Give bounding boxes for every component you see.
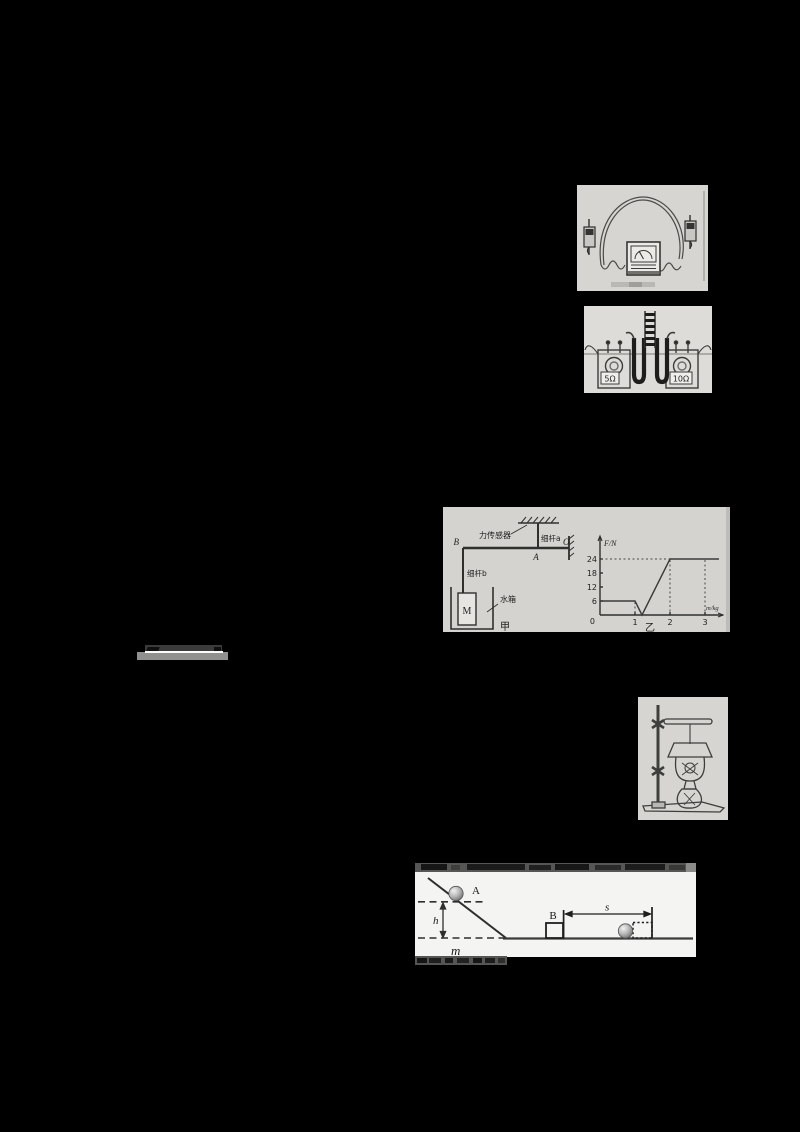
meter-box bbox=[627, 242, 660, 275]
right-resistor-label: 10Ω bbox=[673, 375, 689, 384]
joule-drawing: 5Ω 10Ω bbox=[584, 306, 712, 393]
lamp-pedestal bbox=[684, 781, 696, 789]
ladder-column bbox=[645, 311, 655, 348]
caption-yi: 乙 bbox=[645, 622, 655, 632]
figure-rope-arch-photo bbox=[577, 185, 708, 291]
figure-joule-heating: 5Ω 10Ω bbox=[584, 306, 712, 393]
y-tick-18: 18 bbox=[587, 569, 597, 578]
lever-graph-drawing: 力传感器 细杆a 细杆b B A O M 水箱 甲 F/N bbox=[443, 507, 730, 632]
caption-jia: 甲 bbox=[500, 622, 510, 632]
x-axis-label: m/kg bbox=[706, 605, 719, 612]
ceiling-support bbox=[518, 517, 559, 523]
scan-edge-strip bbox=[726, 507, 730, 632]
point-o-label: O bbox=[563, 537, 570, 547]
left-resistor-label: 5Ω bbox=[604, 375, 615, 384]
graph-curve bbox=[600, 559, 719, 615]
graph-dotted-guides bbox=[601, 559, 705, 614]
rope-arch-drawing bbox=[577, 185, 708, 291]
mass-label: m bbox=[451, 943, 460, 958]
figure-incline-experiment: A h m B s bbox=[415, 863, 696, 966]
y-tick-12: 12 bbox=[587, 583, 597, 592]
ball-at-end bbox=[618, 924, 632, 938]
block-b bbox=[546, 923, 563, 938]
x-tick-1: 1 bbox=[632, 618, 637, 627]
bottom-redacted-strip bbox=[415, 956, 507, 965]
wavy-wire-left bbox=[601, 261, 625, 269]
figure-iron-stand-lamp bbox=[638, 697, 728, 820]
horizontal-tube bbox=[664, 719, 712, 724]
ball-a bbox=[449, 886, 463, 900]
wall-support bbox=[569, 535, 574, 560]
distance-label: s bbox=[605, 902, 609, 914]
sensor-label: 力传感器 bbox=[479, 530, 511, 540]
answer-underline bbox=[145, 651, 223, 653]
rod-foot bbox=[652, 802, 665, 808]
stand-drawing bbox=[638, 697, 728, 820]
rod-b-label: 细杆b bbox=[467, 568, 487, 578]
right-gauge-device bbox=[685, 215, 696, 249]
rod-a-label: 细杆a bbox=[541, 533, 561, 543]
y-tick-6: 6 bbox=[592, 597, 597, 606]
redact-light-strip bbox=[137, 652, 228, 660]
y-tick-24: 24 bbox=[587, 555, 597, 564]
x-tick-3: 3 bbox=[702, 618, 707, 627]
y-axis-label: F/N bbox=[603, 539, 617, 548]
block-m-label: M bbox=[463, 606, 472, 617]
tank-label: 水箱 bbox=[500, 594, 516, 604]
redacted-answer-blank bbox=[137, 645, 228, 660]
origin-label: 0 bbox=[590, 617, 595, 626]
point-b-label: B bbox=[454, 537, 460, 547]
lamp-shade bbox=[668, 743, 712, 757]
ball-a-label: A bbox=[472, 885, 480, 897]
sensor-pointer-line bbox=[511, 525, 527, 534]
pen-mark-right bbox=[214, 647, 221, 651]
right-u-tube bbox=[657, 338, 667, 382]
x-tick-2: 2 bbox=[667, 618, 672, 627]
left-gauge-device bbox=[584, 219, 595, 255]
block-b-label: B bbox=[549, 910, 556, 922]
point-a-label: A bbox=[532, 552, 539, 562]
pen-mark-left bbox=[146, 647, 159, 651]
top-redacted-strip bbox=[415, 863, 696, 872]
left-u-tube bbox=[634, 338, 644, 382]
caption-smudge-dark bbox=[629, 282, 642, 287]
height-label: h bbox=[433, 915, 439, 927]
incline-drawing: A h m B s bbox=[415, 863, 696, 966]
figure-lever-sensor-and-graph: 力传感器 细杆a 细杆b B A O M 水箱 甲 F/N bbox=[443, 507, 730, 632]
